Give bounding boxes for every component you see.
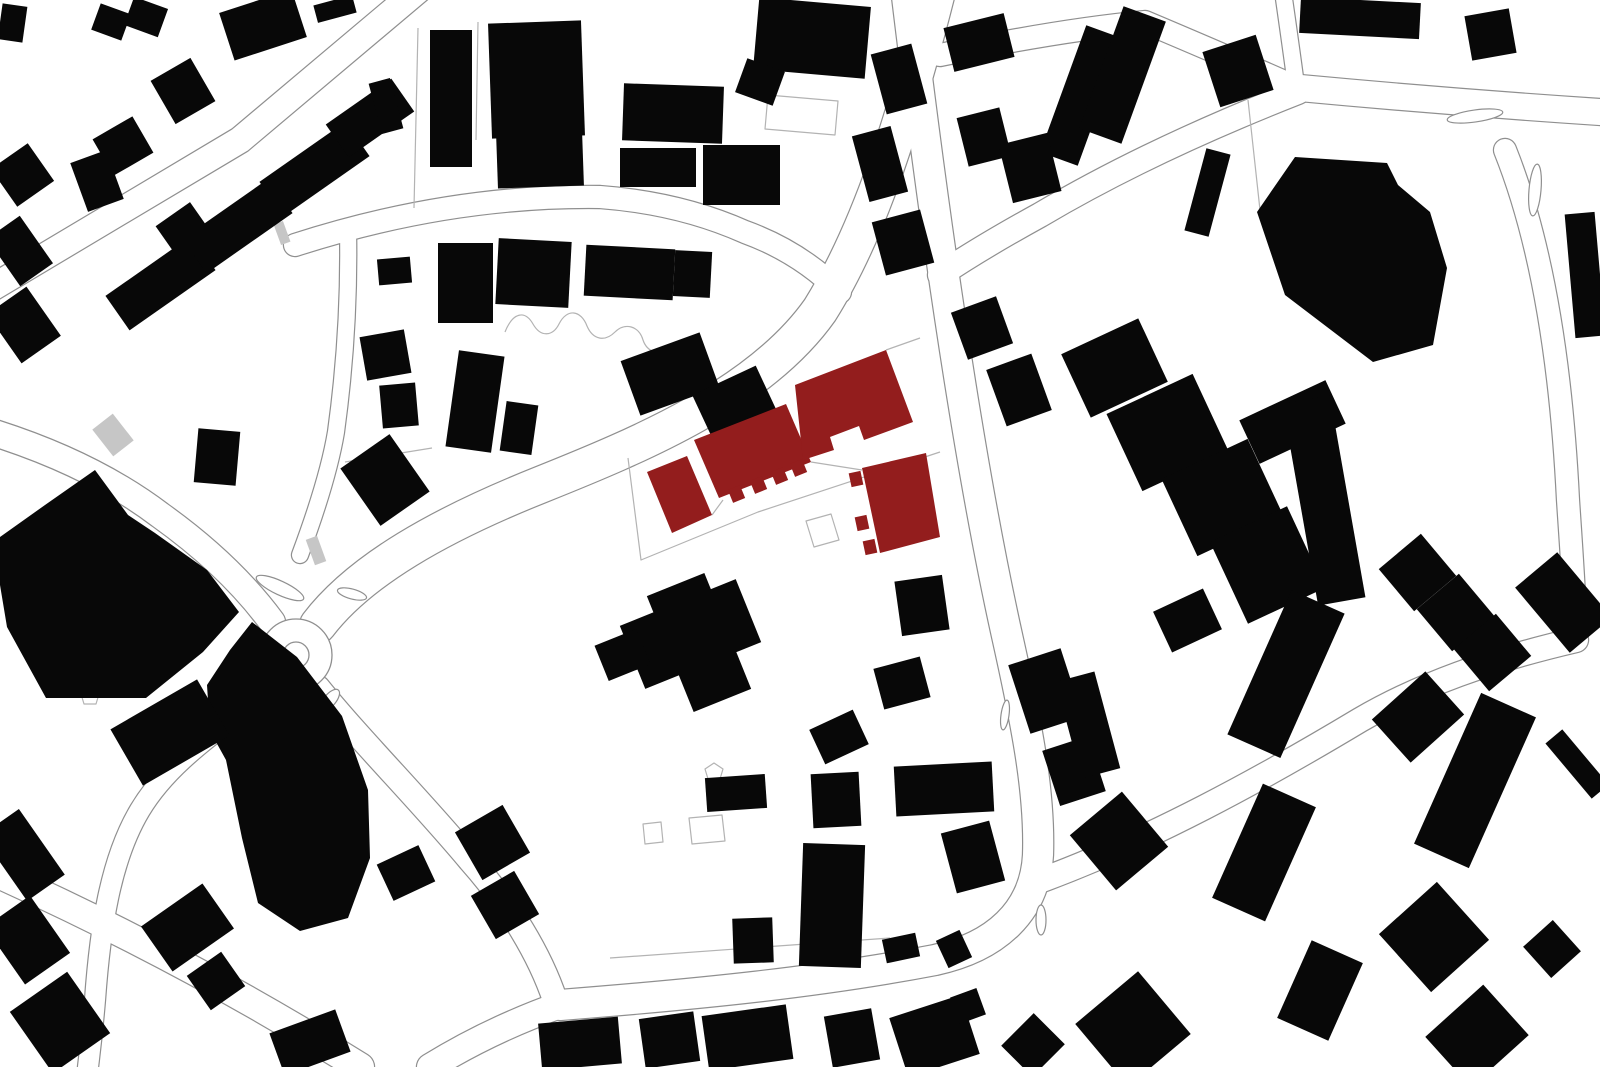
building-footprint: [873, 657, 930, 710]
building-footprint: [438, 243, 493, 323]
building-footprint: [207, 622, 370, 931]
building-footprint: [1464, 8, 1516, 60]
building-footprint: [703, 145, 780, 205]
building-footprint: [809, 710, 869, 765]
building-footprint: [673, 250, 712, 298]
building-footprint: [1257, 157, 1447, 362]
building-footprint: [219, 0, 307, 61]
building-footprint: [0, 143, 54, 206]
building-footprint: [811, 772, 862, 828]
building-footprint: [1299, 0, 1421, 39]
building-footprint: [702, 1004, 794, 1067]
building-footprint: [379, 383, 419, 429]
building-footprint: [622, 83, 724, 143]
building-footprint: [1001, 1013, 1065, 1067]
building-footprint: [639, 1011, 700, 1067]
building-footprint: [943, 13, 1014, 72]
building-footprint: [488, 20, 585, 138]
building-footprint: [1545, 729, 1600, 798]
building-footprint: [194, 428, 241, 485]
building-footprint: [1075, 971, 1191, 1067]
building-footprint: [894, 575, 949, 636]
road-fill-layer: [0, 0, 1600, 1067]
building-footprint: [894, 761, 994, 816]
building-footprint: [377, 845, 436, 901]
site-plan-map: [0, 0, 1600, 1067]
parcel-line: [765, 95, 838, 135]
parcel-line: [705, 763, 723, 779]
building-footprint: [495, 238, 571, 308]
building-footprint: [1425, 985, 1528, 1067]
parcel-line: [886, 338, 920, 350]
parcel-line: [476, 22, 478, 140]
hatch-strip: [92, 414, 133, 457]
building-footprint-layer: [0, 0, 1600, 1067]
traffic-island: [1527, 164, 1543, 217]
building-footprint: [1523, 920, 1581, 978]
building-footprint: [986, 354, 1052, 427]
building-footprint: [360, 329, 412, 380]
highlighted-building: [849, 471, 864, 487]
building-footprint: [1515, 552, 1600, 652]
building-footprint: [620, 148, 696, 187]
building-footprint: [1379, 882, 1489, 992]
building-footprint: [824, 1008, 880, 1067]
building-footprint: [430, 30, 472, 167]
highlighted-building: [863, 539, 878, 555]
building-footprint: [584, 245, 676, 301]
building-footprint: [496, 131, 584, 189]
building-footprint: [1184, 148, 1230, 237]
building-footprint: [445, 350, 504, 452]
road-surface: [1300, 88, 1600, 112]
building-footprint: [0, 3, 27, 42]
parcel-line: [806, 514, 839, 547]
highlighted-building: [647, 456, 712, 533]
building-footprint: [538, 1017, 622, 1067]
building-footprint: [500, 401, 539, 455]
parcel-line: [643, 822, 663, 844]
building-footprint: [313, 0, 356, 23]
building-footprint: [0, 470, 239, 698]
building-footprint: [732, 917, 774, 963]
building-footprint: [151, 58, 216, 124]
building-footprint: [1277, 940, 1363, 1040]
building-footprint: [0, 287, 61, 364]
parcel-line: [414, 28, 418, 208]
building-footprint: [124, 0, 168, 37]
building-footprint: [799, 843, 865, 968]
parcel-line: [689, 815, 725, 844]
highlighted-building: [795, 350, 913, 460]
parcel-line: [712, 500, 723, 515]
building-footprint: [91, 3, 131, 40]
building-footprint: [1565, 212, 1600, 338]
road-casing-layer: [0, 0, 1600, 1067]
building-footprint: [1153, 588, 1222, 652]
parcel-line: [811, 462, 862, 470]
highlighted-building: [855, 515, 870, 531]
road-surface: [300, 230, 348, 555]
figure-ground-plan: [0, 0, 1600, 1067]
traffic-island: [1036, 905, 1046, 935]
building-footprint: [377, 257, 412, 286]
building-footprint: [705, 774, 767, 812]
building-footprint: [941, 821, 1005, 894]
building-footprint: [340, 434, 429, 526]
highlighted-building: [862, 453, 940, 553]
